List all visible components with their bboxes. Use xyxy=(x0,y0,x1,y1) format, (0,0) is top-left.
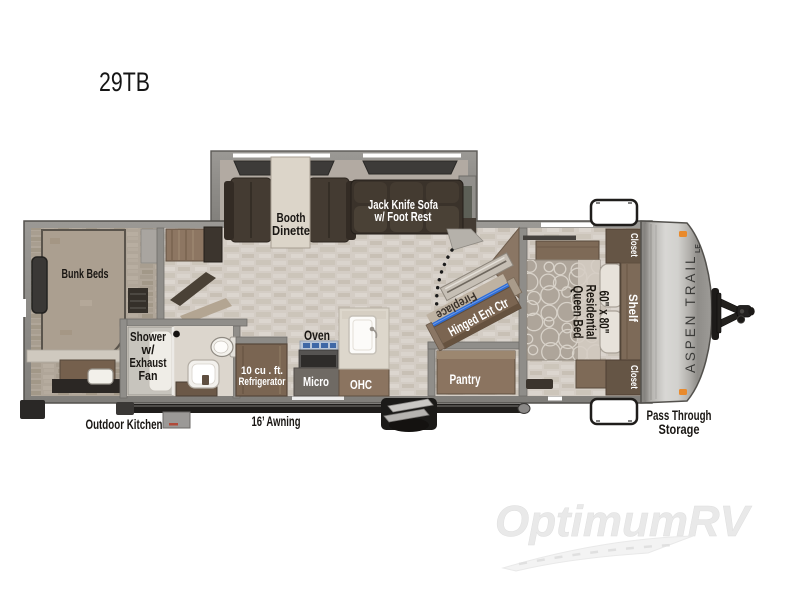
svg-text:16’ Awning: 16’ Awning xyxy=(252,414,301,429)
svg-text:Refrigerator: Refrigerator xyxy=(239,376,287,388)
svg-text:Queen Bed: Queen Bed xyxy=(571,286,587,339)
svg-text:OHC: OHC xyxy=(350,377,372,392)
svg-text:Bunk Beds: Bunk Beds xyxy=(62,266,109,281)
svg-text:Pass Through: Pass Through xyxy=(647,408,712,423)
svg-text:Storage: Storage xyxy=(659,422,700,437)
svg-text:Dinette: Dinette xyxy=(272,223,310,238)
svg-text:Shelf: Shelf xyxy=(626,294,638,322)
svg-text:Micro: Micro xyxy=(303,375,329,389)
svg-text:29TB: 29TB xyxy=(99,67,150,97)
svg-text:Oven: Oven xyxy=(304,328,330,343)
svg-text:OptimumRV: OptimumRV xyxy=(495,497,753,546)
svg-text:Closet: Closet xyxy=(628,365,639,390)
svg-text:w/ Foot Rest: w/ Foot Rest xyxy=(374,209,432,224)
svg-text:Closet: Closet xyxy=(628,233,639,258)
svg-text:LE: LE xyxy=(695,244,702,253)
svg-text:Fan: Fan xyxy=(139,368,158,383)
svg-text:Outdoor Kitchen: Outdoor Kitchen xyxy=(86,417,163,432)
svg-text:Pantry: Pantry xyxy=(450,372,481,387)
